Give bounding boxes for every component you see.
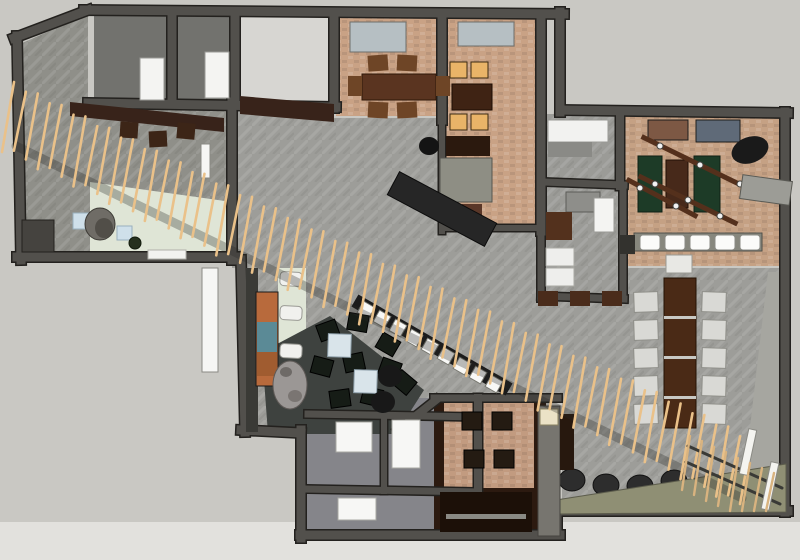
floor-plan-svg: [0, 0, 800, 560]
communal-chair-l1: [634, 292, 659, 313]
communal-chair-l2: [634, 320, 659, 341]
rail-light-7: [637, 185, 643, 191]
rock-detail-1: [280, 367, 292, 377]
dining1-chair-2: [397, 54, 418, 71]
table-band-3: [664, 396, 696, 399]
low-stool-1: [538, 291, 558, 306]
reception-desk-top: [95, 218, 113, 238]
glow-chair-4: [471, 114, 488, 130]
coffee-table-2: [354, 370, 378, 394]
game-stool-4: [715, 235, 735, 250]
game-stool-5: [740, 235, 760, 250]
low-stool-2: [570, 291, 590, 306]
office-daybed-2: [546, 268, 574, 286]
canopy-stool-2: [149, 131, 168, 148]
picture-frame-1: [648, 120, 688, 140]
wall-bath-top: [308, 414, 478, 417]
service-door: [22, 220, 54, 252]
rail-light-6: [717, 213, 723, 219]
plant: [129, 237, 141, 249]
dining-table-2: [452, 84, 492, 110]
wall-top: [84, 10, 564, 14]
skylight-2: [458, 22, 514, 46]
wall-lounge-left: [241, 260, 245, 432]
pantry-counter: [548, 120, 608, 142]
wall-right-wing-top: [560, 110, 788, 113]
rail-light-8: [673, 203, 679, 209]
wine-shelf: [560, 414, 574, 470]
glass-door: [202, 268, 218, 372]
dining1-chair-1: [367, 54, 388, 71]
bath-fixture-2: [392, 420, 420, 468]
rail-light-4: [652, 181, 658, 187]
canopy-stool-1: [119, 121, 138, 138]
corridor-floor: [238, 16, 332, 104]
communal-chair-l3: [634, 348, 659, 369]
table-band-1: [664, 316, 696, 319]
communal-chair-r1: [702, 292, 727, 313]
round-table: [419, 137, 439, 155]
round-stool-2: [371, 391, 395, 413]
coffee-table-1: [328, 334, 352, 358]
room-b-counter: [205, 52, 229, 98]
floor-plan-render: [0, 0, 800, 560]
low-stool-3: [602, 291, 622, 306]
game-shelf: [620, 235, 635, 254]
communal-chair-r3: [702, 348, 727, 369]
wall-pantry-office: [544, 182, 624, 185]
pantry-counter-face: [548, 142, 592, 157]
office-daybed-1: [546, 248, 574, 266]
stair-landing: [440, 492, 532, 532]
room-a-counter: [140, 58, 164, 100]
rail-light-2: [697, 162, 703, 168]
communal-chair-r5: [702, 404, 727, 425]
game-stool-1: [640, 235, 660, 250]
booth-chair-4: [494, 450, 514, 468]
rock-detail-2: [288, 390, 302, 402]
table-band-2: [664, 356, 696, 359]
communal-chair-l4: [634, 376, 659, 397]
game-stool-2: [665, 235, 685, 250]
wall-bath-bottom: [306, 489, 478, 492]
canopy-stool-3: [176, 122, 195, 140]
banquette: [446, 136, 490, 156]
game-stool-3: [690, 235, 710, 250]
communal-chair-r4: [702, 376, 727, 397]
rock-feature: [273, 361, 307, 409]
skylight-1: [350, 22, 406, 52]
office-sofa: [546, 212, 572, 240]
booth-chair-3: [464, 450, 484, 468]
dining1-chair-4: [397, 101, 418, 118]
lounge-chair-7: [329, 389, 351, 409]
dining1-chair-5: [348, 76, 362, 96]
bench-2: [280, 305, 303, 320]
picture-frame-2: [696, 120, 740, 142]
mural-orange-band: [257, 352, 277, 376]
head-chair: [666, 255, 692, 273]
rail-light-5: [685, 197, 691, 203]
dining1-chair-6: [436, 76, 450, 96]
glow-chair-3: [450, 114, 467, 130]
dining-table-1: [362, 74, 436, 100]
office-cabinet: [594, 198, 614, 232]
entry-threshold: [148, 250, 186, 259]
door-mat-2: [117, 226, 132, 240]
glow-chair-1: [450, 62, 467, 78]
glow-chair-2: [471, 62, 488, 78]
booth-chair-1: [462, 412, 482, 430]
rail-light-1: [657, 143, 663, 149]
white-door-top: [201, 144, 210, 178]
round-ottoman-1: [559, 469, 585, 491]
round-stool-1: [378, 365, 402, 387]
bath-fixture-3: [338, 498, 376, 520]
bench-3: [280, 343, 303, 358]
booth-chair-2: [492, 412, 512, 430]
communal-chair-r2: [702, 320, 727, 341]
dining1-chair-3: [368, 101, 389, 118]
service-station: [440, 158, 492, 202]
bath-fixture-1: [336, 422, 372, 452]
mural-teal-band: [257, 322, 277, 352]
stair-stripe: [446, 514, 526, 519]
